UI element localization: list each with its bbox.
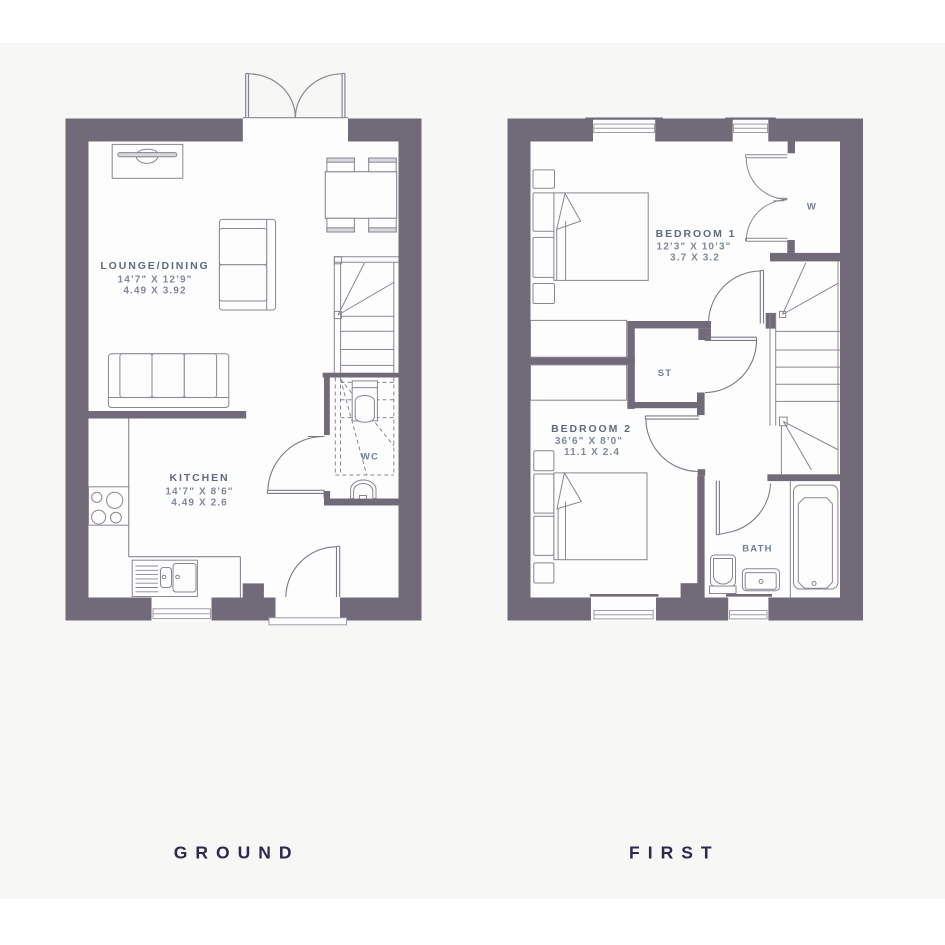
svg-text:3.7 X 3.2: 3.7 X 3.2 (670, 253, 720, 264)
svg-text:14’7" X 12’9": 14’7" X 12’9" (118, 275, 193, 286)
svg-text:4.49 X 3.92: 4.49 X 3.92 (123, 286, 186, 297)
svg-text:BEDROOM 1: BEDROOM 1 (656, 228, 737, 240)
svg-text:W: W (807, 202, 817, 213)
svg-text:4.49 X 2.6: 4.49 X 2.6 (171, 498, 228, 509)
svg-text:BATH: BATH (742, 544, 772, 555)
svg-text:12’3" X 10’3": 12’3" X 10’3" (657, 242, 732, 253)
svg-text:36’6" X 8’0": 36’6" X 8’0" (555, 436, 623, 447)
svg-text:BEDROOM 2: BEDROOM 2 (551, 423, 632, 435)
svg-text:ST: ST (658, 368, 673, 379)
svg-text:LOUNGE/DINING: LOUNGE/DINING (100, 260, 209, 272)
svg-text:GROUND: GROUND (174, 843, 300, 863)
svg-text:FIRST: FIRST (629, 843, 720, 863)
svg-text:11.1 X 2.4: 11.1 X 2.4 (564, 447, 620, 458)
svg-text:KITCHEN: KITCHEN (170, 472, 230, 484)
svg-text:WC: WC (361, 452, 379, 463)
svg-text:14’7" X 8’6": 14’7" X 8’6" (165, 487, 233, 498)
